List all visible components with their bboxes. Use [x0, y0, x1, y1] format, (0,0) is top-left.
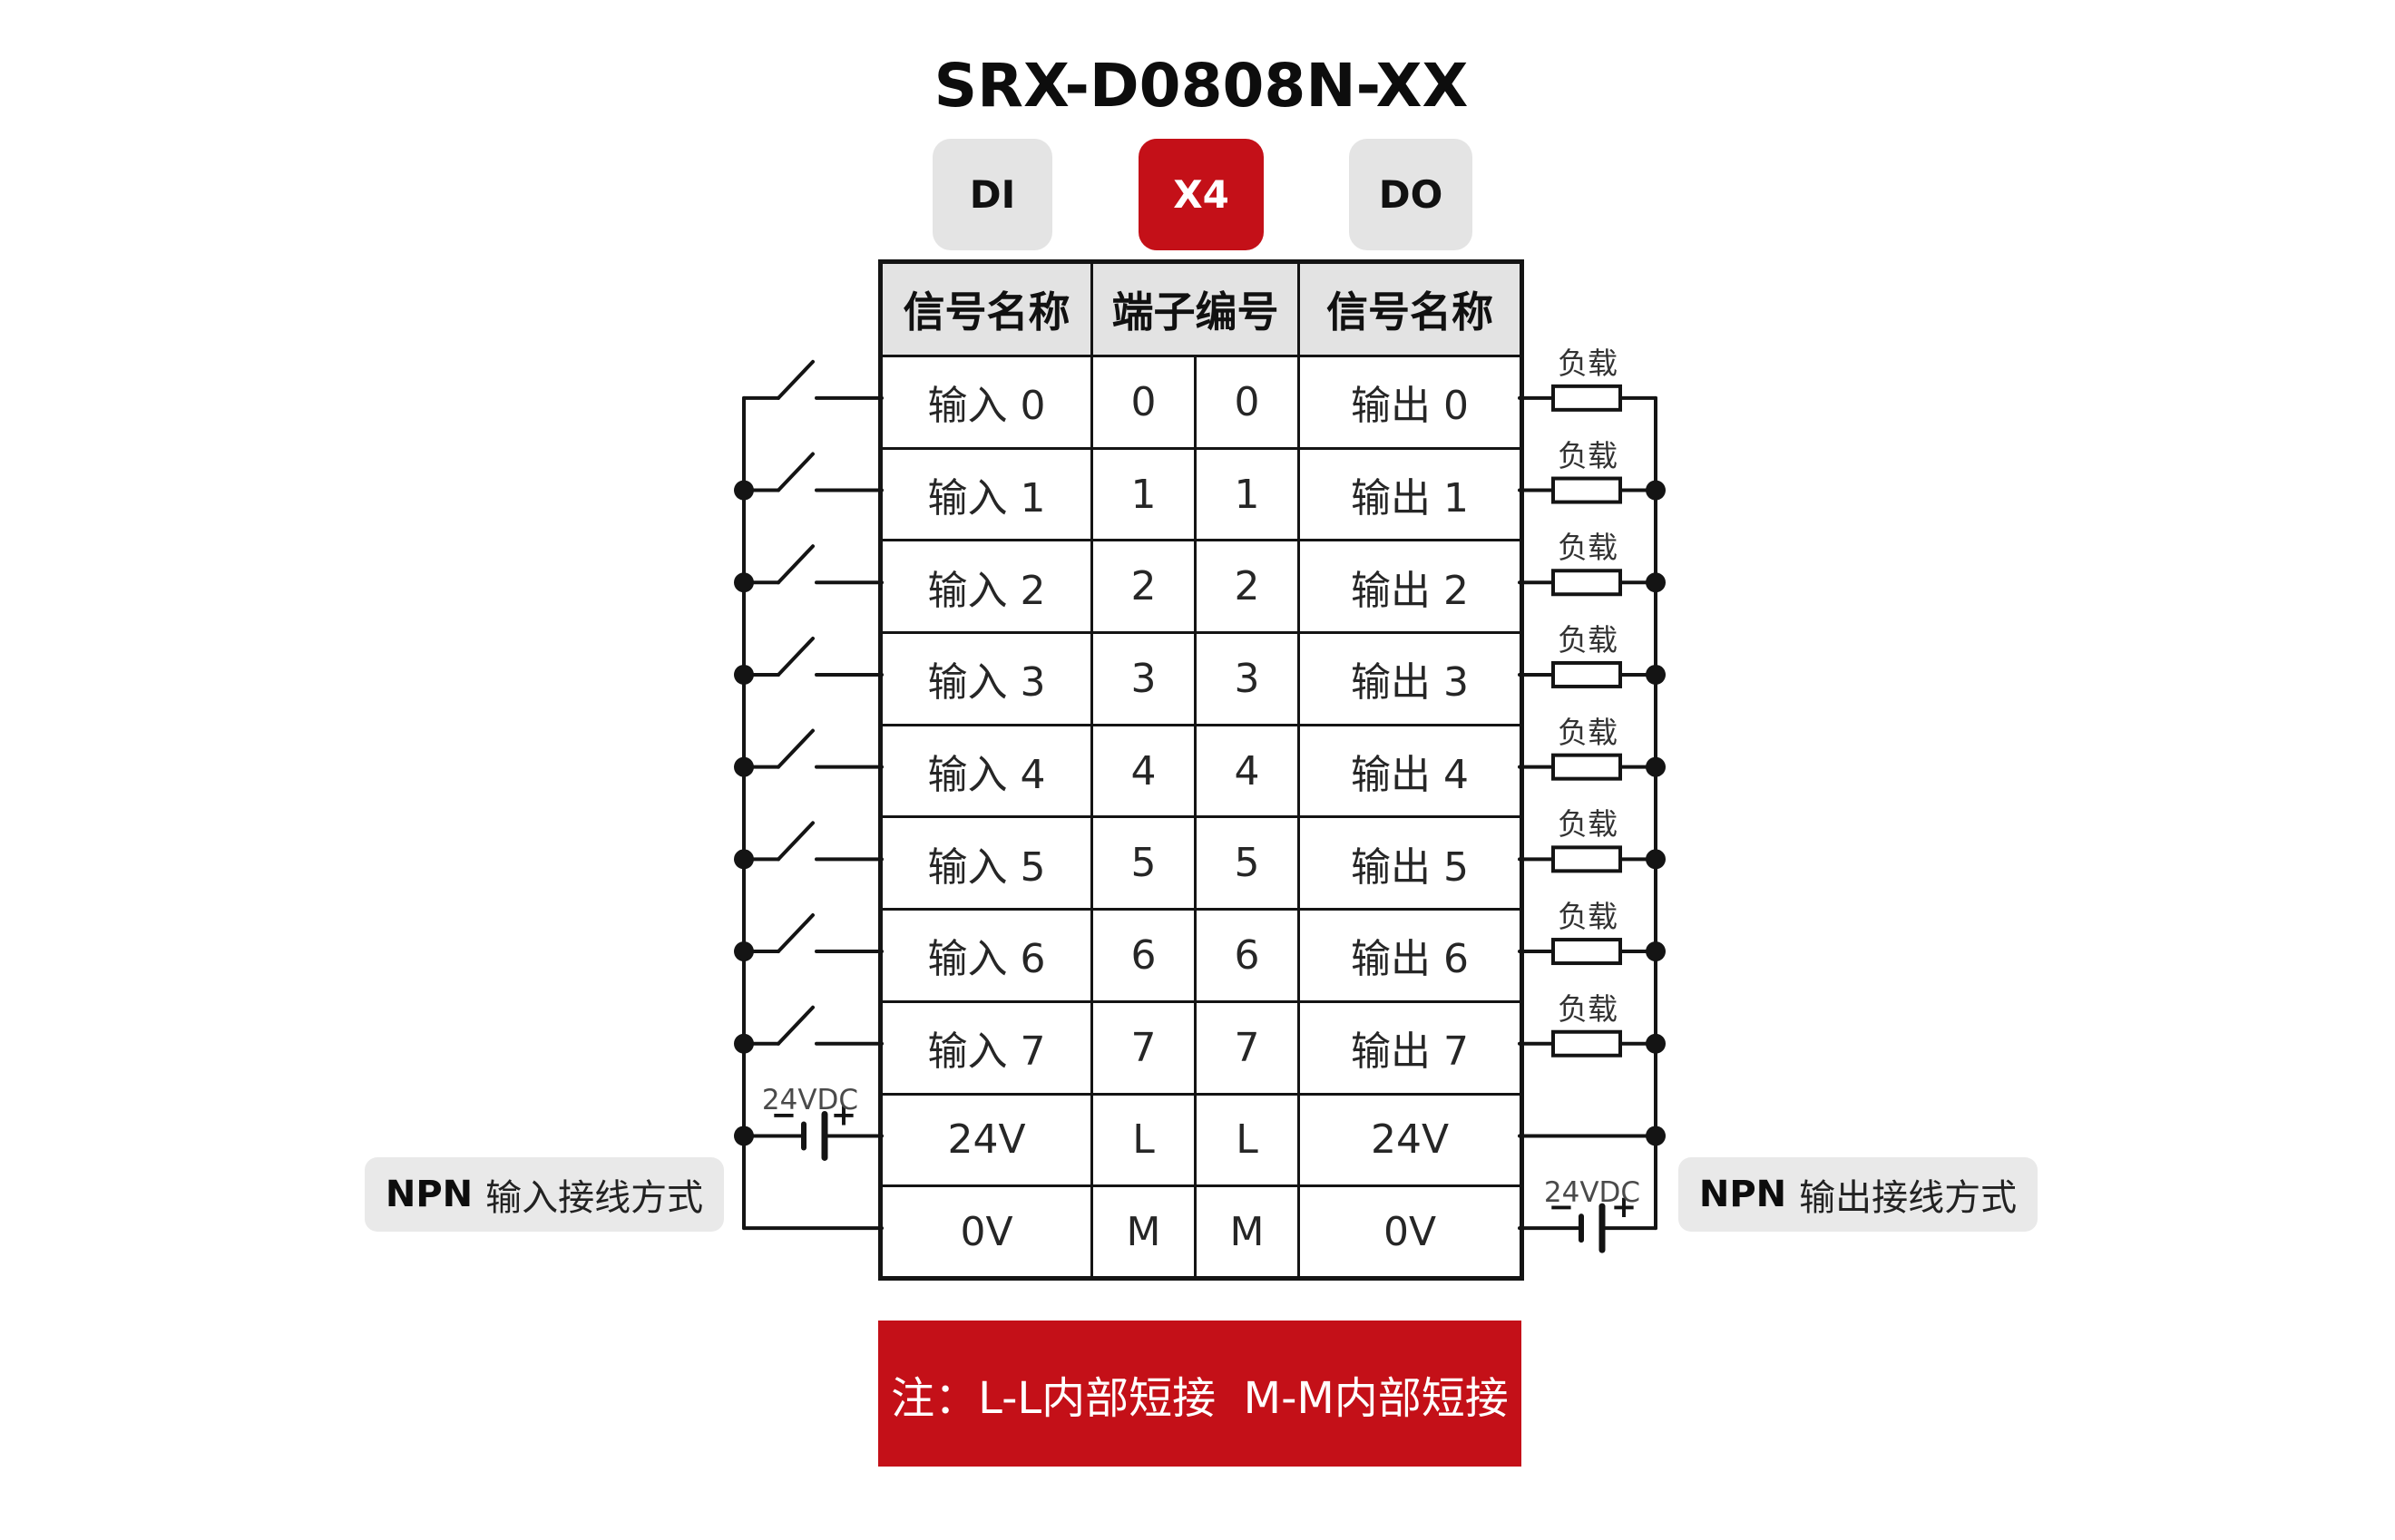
load-label-4: 负载 [1535, 715, 1640, 751]
load-resistor-7 [1520, 1032, 1656, 1056]
table-cell: 6 [1092, 910, 1196, 1002]
load-resistor-3 [1520, 663, 1656, 687]
load-label-3: 负载 [1535, 622, 1640, 658]
header-cell: 信号名称 [1299, 262, 1522, 356]
right-caption-text: 输出接线方式 [1799, 1168, 2017, 1221]
load-label-1: 负载 [1535, 438, 1640, 474]
table-cell: 输入 2 [881, 541, 1092, 633]
load-label-2: 负载 [1535, 530, 1640, 566]
page-title: SRX-D0808N-XX [657, 51, 1745, 121]
table-row: 输入 000输出 0 [881, 356, 1522, 449]
table-cell: 输入 0 [881, 356, 1092, 449]
table-cell: 输入 6 [881, 910, 1092, 1002]
junction-dot [1646, 481, 1666, 501]
load-label-7: 负载 [1535, 991, 1640, 1028]
table-row: 输入 222输出 2 [881, 541, 1522, 633]
left-caption-npn: NPN [386, 1174, 473, 1215]
table-cell: 输出 1 [1299, 448, 1522, 541]
load-label-5: 负载 [1535, 806, 1640, 843]
table-cell: 输出 0 [1299, 356, 1522, 449]
table-cell: 2 [1196, 541, 1299, 633]
table-cell: 输入 5 [881, 817, 1092, 910]
table-row: 输入 333输出 3 [881, 633, 1522, 726]
table-cell: M [1092, 1186, 1196, 1279]
table-row: 输入 666输出 6 [881, 910, 1522, 1002]
table-cell: L [1092, 1094, 1196, 1186]
load-resistor-2 [1520, 570, 1656, 594]
table-cell: 5 [1196, 817, 1299, 910]
table-cell: 0V [881, 1186, 1092, 1279]
input-switch-4 [744, 731, 882, 767]
junction-dot [1646, 665, 1666, 685]
table-cell: 输入 4 [881, 725, 1092, 817]
load-label-6: 负载 [1535, 899, 1640, 935]
table-cell: M [1196, 1186, 1299, 1279]
table-cell: 输入 3 [881, 633, 1092, 726]
table-row: 0VMM0V [881, 1186, 1522, 1279]
input-switch-0 [744, 362, 882, 398]
table-cell: 3 [1092, 633, 1196, 726]
header-cell: 端子编号 [1092, 262, 1299, 356]
table-cell: 4 [1092, 725, 1196, 817]
table-cell: 4 [1196, 725, 1299, 817]
input-switch-3 [744, 638, 882, 675]
right-caption-npn: NPN [1699, 1174, 1786, 1215]
junction-dot [1646, 757, 1666, 777]
table-cell: 7 [1196, 1001, 1299, 1094]
wiring-diagram-page: −+−+ SRX-D0808N-XX DI X4 DO 信号名称端子编号信号名称… [0, 0, 2395, 1540]
table-row: 24VLL24V [881, 1094, 1522, 1186]
table-cell: 6 [1196, 910, 1299, 1002]
load-resistor-5 [1520, 847, 1656, 871]
terminal-table-body: 输入 000输出 0输入 111输出 1输入 222输出 2输入 333输出 3… [881, 356, 1522, 1279]
load-resistor-1 [1520, 479, 1656, 502]
junction-dot [734, 572, 754, 592]
junction-dot [734, 665, 754, 685]
load-resistor-0 [1520, 386, 1656, 410]
table-cell: 输出 4 [1299, 725, 1522, 817]
left-caption-text: 输入接线方式 [485, 1168, 703, 1221]
junction-dot [1646, 849, 1666, 869]
junction-dot [734, 941, 754, 961]
table-cell: 输入 7 [881, 1001, 1092, 1094]
terminal-table-header: 信号名称端子编号信号名称 [881, 262, 1522, 356]
junction-dot [734, 757, 754, 777]
table-cell: 3 [1196, 633, 1299, 726]
junction-dot [1646, 572, 1666, 592]
junction-dot [734, 481, 754, 501]
junction-dot [734, 1034, 754, 1054]
table-cell: 输出 3 [1299, 633, 1522, 726]
table-cell: 0 [1196, 356, 1299, 449]
input-switch-5 [744, 823, 882, 859]
load-resistor-4 [1520, 755, 1656, 779]
table-cell: 0 [1092, 356, 1196, 449]
table-cell: 5 [1092, 817, 1196, 910]
table-cell: 输出 5 [1299, 817, 1522, 910]
right-wiring-caption: NPN 输出接线方式 [1678, 1157, 2038, 1232]
junction-dot [1646, 941, 1666, 961]
tab-di[interactable]: DI [933, 139, 1052, 250]
table-cell: 输入 1 [881, 448, 1092, 541]
table-cell: 7 [1092, 1001, 1196, 1094]
input-switch-6 [744, 915, 882, 951]
table-cell: 24V [881, 1094, 1092, 1186]
tab-do[interactable]: DO [1349, 139, 1472, 250]
table-row: 输入 444输出 4 [881, 725, 1522, 817]
table-cell: 输出 6 [1299, 910, 1522, 1002]
left-wiring-caption: NPN 输入接线方式 [365, 1157, 724, 1232]
note-banner: 注：L-L内部短接 M-M内部短接 [878, 1321, 1521, 1467]
terminal-table: 信号名称端子编号信号名称 输入 000输出 0输入 111输出 1输入 222输… [878, 259, 1524, 1281]
input-switch-1 [744, 454, 882, 491]
table-row: 输入 777输出 7 [881, 1001, 1522, 1094]
table-cell: 2 [1092, 541, 1196, 633]
input-switch-2 [744, 546, 882, 582]
load-resistor-6 [1520, 940, 1656, 963]
table-cell: L [1196, 1094, 1299, 1186]
header-cell: 信号名称 [881, 262, 1092, 356]
junction-dot [1646, 1034, 1666, 1054]
table-cell: 24V [1299, 1094, 1522, 1186]
left-supply-label: 24VDC [719, 1083, 901, 1117]
load-label-0: 负载 [1535, 346, 1640, 382]
table-cell: 1 [1196, 448, 1299, 541]
junction-dot [734, 849, 754, 869]
input-switch-7 [744, 1008, 882, 1044]
tab-x4[interactable]: X4 [1139, 139, 1264, 250]
table-cell: 输出 2 [1299, 541, 1522, 633]
table-row: 输入 111输出 1 [881, 448, 1522, 541]
table-row: 输入 555输出 5 [881, 817, 1522, 910]
header-row: 信号名称端子编号信号名称 [881, 262, 1522, 356]
right-supply-label: 24VDC [1501, 1175, 1683, 1210]
table-cell: 输出 7 [1299, 1001, 1522, 1094]
table-cell: 1 [1092, 448, 1196, 541]
table-cell: 0V [1299, 1186, 1522, 1279]
